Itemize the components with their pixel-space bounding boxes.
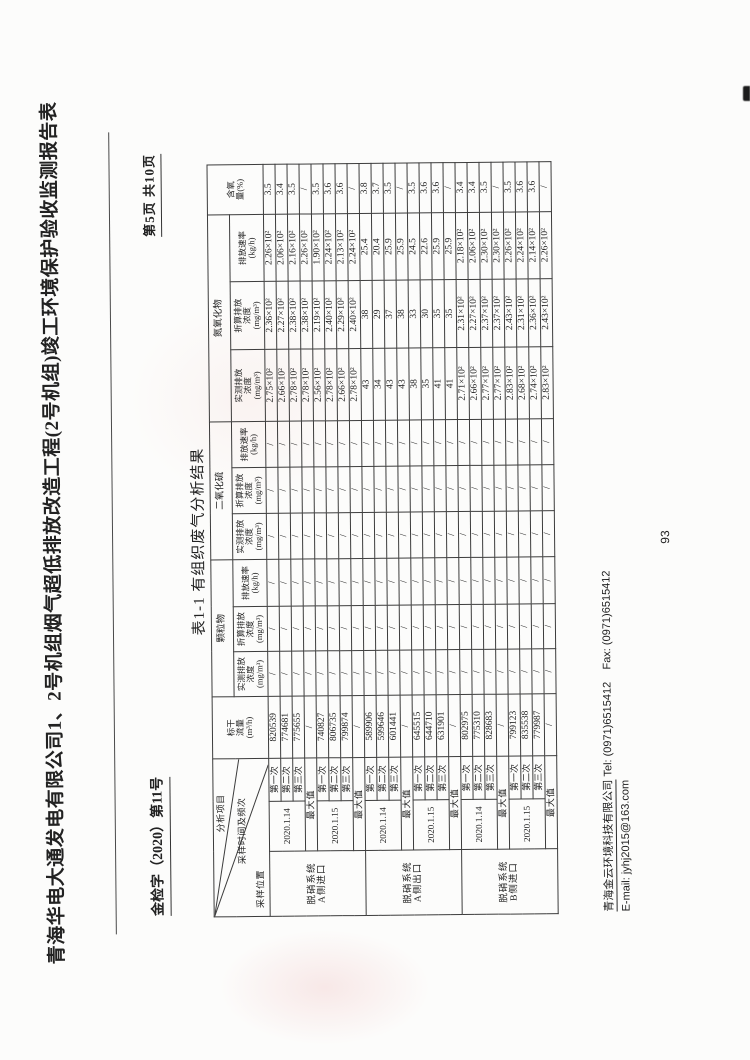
date-cell: 2020.1.14 [365,800,401,850]
value-cell: / [411,605,423,650]
value-cell: / [387,558,399,605]
value-cell: / [446,512,458,558]
value-cell: / [280,651,292,696]
footer-email: E-mail: jyhj2015@163.com [617,570,632,911]
value-cell: / [493,419,505,465]
value-cell: / [351,605,363,650]
value-cell: / [289,421,301,467]
value-cell: 3.6 [335,164,347,214]
value-cell: / [387,605,399,650]
value-cell: 2.43×10² [504,279,517,347]
subheader-converted: 折算排放 浓度 (mg/m³) [232,467,266,513]
value-cell: 2.26×10² [299,214,312,281]
value-cell: / [400,650,412,695]
value-cell: / [304,696,317,758]
value-cell: / [314,513,326,559]
run-label-cell: 第三次 [533,756,545,799]
run-label-cell: 第三次 [485,756,497,799]
value-cell: / [303,606,315,651]
value-cell: / [471,557,483,604]
sheet-page-number: 93 [654,161,675,913]
value-cell: / [313,421,325,467]
value-cell: 3.5 [263,164,275,214]
subheader-rate: 排放速率 (kg/h) [231,421,265,467]
value-cell: / [339,559,351,606]
value-cell: / [316,651,328,696]
value-cell: / [291,559,303,606]
value-cell: / [362,466,374,512]
value-cell: 3.6 [431,163,443,213]
value-cell: / [411,558,423,605]
value-cell: 38 [409,348,422,420]
subheader-measured: 实测排放 浓度 (mg/m³) [234,651,268,696]
value-cell: 740827 [316,696,329,758]
value-cell: / [460,649,472,694]
value-cell: / [539,162,551,212]
diagonal-label-time: 采样时间及频次 [238,798,248,865]
value-cell: / [531,604,543,649]
value-cell: 34 [373,348,386,420]
value-cell: 2.36×10² [264,281,277,349]
value-cell: / [519,604,531,649]
value-cell: / [303,559,315,606]
value-cell: / [443,162,455,212]
value-cell: 775310 [472,694,485,756]
value-cell: / [448,650,460,695]
value-cell: / [529,419,541,465]
value-cell: / [398,512,410,558]
value-cell: 3.6 [515,162,527,212]
value-cell: 2.06×10² [467,212,480,279]
run-label-cell: 第三次 [293,758,305,801]
value-cell: / [364,650,376,695]
value-cell: 2.56×10² [313,349,326,421]
subheader-measured: 实测排放 浓度 (mg/m³) [231,349,266,421]
value-cell: / [484,649,496,694]
value-cell: 2.83×10² [541,347,554,419]
value-cell: 41 [445,348,458,420]
value-cell: / [386,466,398,512]
value-cell: 799874 [340,696,353,758]
run-label-cell: 第三次 [341,758,353,801]
value-cell: / [470,511,482,557]
value-cell: / [435,558,447,605]
value-cell: / [292,651,304,696]
column-group-nox: 氮氧化物 [207,215,231,422]
value-cell: / [385,420,397,466]
value-cell: / [412,650,424,695]
value-cell: 2.26×10² [263,214,276,281]
value-cell: 2.19×10² [312,281,325,349]
value-cell: / [265,421,277,467]
value-cell: / [352,650,364,695]
run-label-cell: 第二次 [521,756,533,799]
value-cell: 2.43×10² [540,279,553,347]
value-cell: / [386,512,398,558]
run-label-cell: 第三次 [437,757,449,800]
value-cell: / [374,466,386,512]
value-cell: 3.4 [455,162,467,212]
value-cell: / [507,604,519,649]
value-cell: 2.38×10² [300,281,313,349]
value-cell: 2.26×10² [503,212,516,279]
value-cell: / [291,606,303,651]
value-cell: 802975 [460,694,473,756]
date-cell: 2020.1.14 [461,799,497,849]
value-cell: 589906 [364,695,377,757]
value-cell: / [518,465,530,511]
value-cell: / [424,650,436,695]
value-cell: / [410,466,422,512]
value-cell: / [279,559,291,606]
value-cell: / [421,420,433,466]
value-cell: / [506,465,518,511]
subheader-converted: 折算排放 浓度 (mg/m³) [233,606,267,651]
value-cell: / [435,605,447,650]
value-cell: 33 [408,280,421,348]
max-label-cell: 最大值 [497,756,510,849]
value-cell: 2.83×10² [505,347,518,419]
value-cell: / [349,420,361,466]
value-cell: 43 [397,348,410,420]
value-cell: 3.5 [383,163,395,213]
value-cell: / [325,421,337,467]
location-cell: 脱硝系统 A侧出口 [366,850,463,916]
value-cell: / [327,559,339,606]
value-cell: / [530,465,542,511]
value-cell: 25.9 [395,213,408,280]
value-cell: / [496,694,509,756]
page-indicator: 第5页 共10页 [138,154,162,237]
run-label-cell: 第一次 [317,758,329,801]
value-cell: / [446,466,458,512]
value-cell: 2.77×10² [481,347,494,419]
diagonal-header-cell: 分析项目 采样时间及频次 采样位置 [213,758,271,917]
value-cell: / [505,419,517,465]
value-cell: / [541,419,553,465]
value-cell: / [542,465,554,511]
value-cell: / [327,606,339,651]
value-cell: / [302,467,314,513]
value-cell: 3.5 [407,163,419,213]
value-cell: 3.7 [371,163,383,213]
run-label-cell: 第一次 [413,757,425,800]
value-cell: / [491,162,503,212]
value-cell: / [399,558,411,605]
value-cell: 2.14×10² [527,212,540,279]
value-cell: 37 [384,280,397,348]
value-cell: 799123 [508,694,521,756]
value-cell: 599646 [376,695,389,757]
value-cell: 2.37×10² [492,279,505,347]
run-label-cell: 第二次 [281,758,293,801]
value-cell: 2.71×10² [457,347,470,419]
results-tbody: 脱硝系统 A侧进口2020.1.14第一次820539//////2.75×10… [263,162,558,917]
column-header-oxygen: 含氧 量(%) [207,164,263,215]
run-label-cell: 第一次 [269,758,281,801]
value-cell: / [459,557,471,604]
value-cell: / [362,512,374,558]
value-cell: / [361,420,373,466]
value-cell: 2.66×10² [277,349,290,421]
value-cell: / [304,651,316,696]
subheader-rate: 排放速率 (kg/h) [233,559,267,606]
value-cell: / [447,605,459,650]
value-cell: 3.6 [527,162,539,212]
value-cell: 2.27×10² [276,281,289,349]
value-cell: 828683 [484,694,497,756]
value-cell: / [519,557,531,604]
value-cell: / [448,695,461,757]
value-cell: / [471,604,483,649]
value-cell: / [376,650,388,695]
value-cell: 35 [421,348,434,420]
value-cell: / [290,513,302,559]
value-cell: / [410,512,422,558]
run-label-cell: 第二次 [473,756,485,799]
footer-company: 青海金云环境科技有限公司 [602,780,617,912]
value-cell: / [436,650,448,695]
value-cell: 2.30×10² [491,212,504,279]
value-cell: / [266,467,278,513]
value-cell: 2.78×10² [301,349,314,421]
value-cell: / [375,558,387,605]
value-cell: 2.31×10² [516,279,529,347]
value-cell: / [339,606,351,651]
value-cell: / [338,467,350,513]
value-cell: / [495,604,507,649]
value-cell: / [494,511,506,557]
run-label-cell: 第二次 [377,757,389,800]
value-cell: / [433,420,445,466]
value-cell: / [326,513,338,559]
value-cell: 2.26×10² [539,212,552,279]
value-cell: 35 [432,280,445,348]
value-cell: / [469,419,481,465]
value-cell: 645515 [412,695,425,757]
value-cell: 2.24×10² [323,214,336,281]
value-cell: 2.37×10² [480,279,493,347]
value-cell: / [445,419,457,465]
value-cell: / [506,511,518,557]
value-cell: / [278,513,290,559]
location-cell: 脱硝系统 B侧进口 [462,849,559,915]
value-cell: 25.4 [359,213,372,280]
value-cell: 2.24×10² [515,212,528,279]
max-label-cell: 最大值 [401,757,414,850]
value-cell: 3.5 [479,162,491,212]
value-cell: / [267,559,279,606]
value-cell: / [544,649,556,694]
value-cell: 25.9 [431,213,444,280]
value-cell: 20.4 [371,213,384,280]
value-cell: / [315,606,327,651]
value-cell: 3.5 [503,162,515,212]
value-cell: 3.8 [359,163,371,213]
value-cell: / [350,512,362,558]
value-cell: / [447,558,459,605]
value-cell: / [351,558,363,605]
value-cell: / [457,419,469,465]
value-cell: / [531,557,543,604]
value-cell: 3.6 [419,163,431,213]
value-cell: 806735 [328,696,341,758]
location-cell: 脱硝系统 A侧进口 [270,850,367,916]
value-cell: 775655 [292,696,305,758]
run-label-cell: 第二次 [329,758,341,801]
value-cell: / [373,420,385,466]
value-cell: / [315,559,327,606]
value-cell: 2.38×10² [288,281,301,349]
value-cell: / [337,421,349,467]
value-cell: / [434,512,446,558]
column-group-so2: 二氧化硫 [209,422,232,560]
value-cell: / [544,694,557,756]
value-cell: / [470,465,482,511]
value-cell: / [472,649,484,694]
value-cell: 41 [433,348,446,420]
value-cell: 29 [372,280,385,348]
value-cell: / [481,419,493,465]
date-cell: 2020.1.15 [317,801,353,851]
subheader-measured: 实测排放 浓度 (mg/m³) [232,513,266,559]
value-cell: 22.6 [419,213,432,280]
value-cell: / [268,651,280,696]
value-cell: 2.78×10² [325,349,338,421]
document-title: 青海华电大通发电有限公司1、2号机组烟气超低排放改造工程(2号机组)竣工环境保护… [33,3,70,1060]
value-cell: 820539 [268,696,281,758]
value-cell: / [494,465,506,511]
value-cell: 3.5 [287,164,299,214]
max-label-cell: 最大值 [449,757,462,850]
value-cell: / [267,606,279,651]
value-cell: / [290,467,302,513]
diagonal-label-location: 采样位置 [256,870,266,908]
value-cell: 38 [396,280,409,348]
value-cell: / [350,466,362,512]
value-cell: 2.77×10² [493,347,506,419]
date-cell: 2020.1.15 [509,799,545,849]
value-cell: / [520,649,532,694]
footer-contact: Tel: (0971)6515412 Fax: (0971)6515412 [600,570,614,779]
value-cell: / [400,695,413,757]
value-cell: / [434,466,446,512]
value-cell: 3.5 [311,164,323,214]
value-cell: 2.78×10² [289,349,302,421]
value-cell: / [374,512,386,558]
value-cell: 2.31×10² [456,279,469,347]
max-label-cell: 最大值 [545,756,558,849]
run-label-cell: 第一次 [365,757,377,800]
value-cell: / [423,605,435,650]
value-cell: / [399,605,411,650]
value-cell: / [328,651,340,696]
value-cell: 2.16×10² [287,214,300,281]
value-cell: / [279,606,291,651]
column-header-flow: 标干 流量 (m³/h) [212,696,269,759]
value-cell: / [423,558,435,605]
value-cell: / [338,513,350,559]
value-cell: / [375,605,387,650]
value-cell: 2.66×10² [337,349,350,421]
value-cell: / [299,164,311,214]
value-cell: 2.40×10² [348,280,361,348]
run-label-cell: 第一次 [509,756,521,799]
value-cell: / [422,466,434,512]
value-cell: 2.24×10² [347,213,360,280]
value-cell: / [388,650,400,695]
scanned-report-page: 青海华电大通发电有限公司1、2号机组烟气超低排放改造工程(2号机组)竣工环境保护… [0,0,750,1060]
value-cell: / [483,557,495,604]
value-cell: 2.68×10² [517,347,530,419]
value-cell: 2.18×10² [455,212,468,279]
value-cell: 2.40×10² [324,281,337,349]
value-cell: 1.90×10² [311,214,324,281]
value-cell: / [395,163,407,213]
value-cell: / [483,604,495,649]
value-cell: / [532,649,544,694]
value-cell: 3.4 [275,164,287,214]
value-cell: 24.5 [407,213,420,280]
value-cell: / [301,421,313,467]
value-cell: 601441 [388,695,401,757]
max-label-cell: 最大值 [305,758,318,851]
value-cell: 2.66×10² [469,347,482,419]
value-cell: 2.29×10² [336,281,349,349]
value-cell: 2.06×10² [275,214,288,281]
results-table: 分析项目 采样时间及频次 采样位置 标干 流量 (m³/h) 颗粒物 二氧化硫 … [206,161,558,917]
value-cell: 3.4 [467,162,479,212]
value-cell: 3.6 [323,164,335,214]
subheader-rate: 排放速率 (kg/h) [229,214,264,281]
value-cell: / [340,651,352,696]
run-label-cell: 第三次 [389,757,401,800]
value-cell: 30 [420,280,433,348]
value-cell: 2.27×10² [468,279,481,347]
value-cell: 25.9 [443,212,456,279]
value-cell: / [482,511,494,557]
value-cell: / [409,420,421,466]
value-cell: / [508,649,520,694]
value-cell: / [517,419,529,465]
value-cell: 43 [385,348,398,420]
value-cell: / [496,649,508,694]
value-cell: / [495,557,507,604]
value-cell: 2.74×10² [529,347,542,419]
value-cell: 2.78×10² [349,348,362,420]
value-cell: 835538 [520,694,533,756]
value-cell: 779987 [532,694,545,756]
value-cell: 644710 [424,695,437,757]
value-cell: / [458,465,470,511]
value-cell: / [266,513,278,559]
value-cell: 631901 [436,695,449,757]
value-cell: 43 [361,348,374,420]
value-cell: / [302,513,314,559]
value-cell: / [422,512,434,558]
document-number: 金检字（2020）第11号 [146,777,171,916]
value-cell: / [482,465,494,511]
value-cell: / [352,695,365,757]
value-cell: / [363,558,375,605]
value-cell: / [314,467,326,513]
value-cell: 35 [444,280,457,348]
value-cell: 2.13×10² [335,214,348,281]
value-cell: / [543,604,555,649]
value-cell: 38 [360,280,373,348]
value-cell: / [363,605,375,650]
diagonal-label-items: 分析项目 [217,794,227,832]
